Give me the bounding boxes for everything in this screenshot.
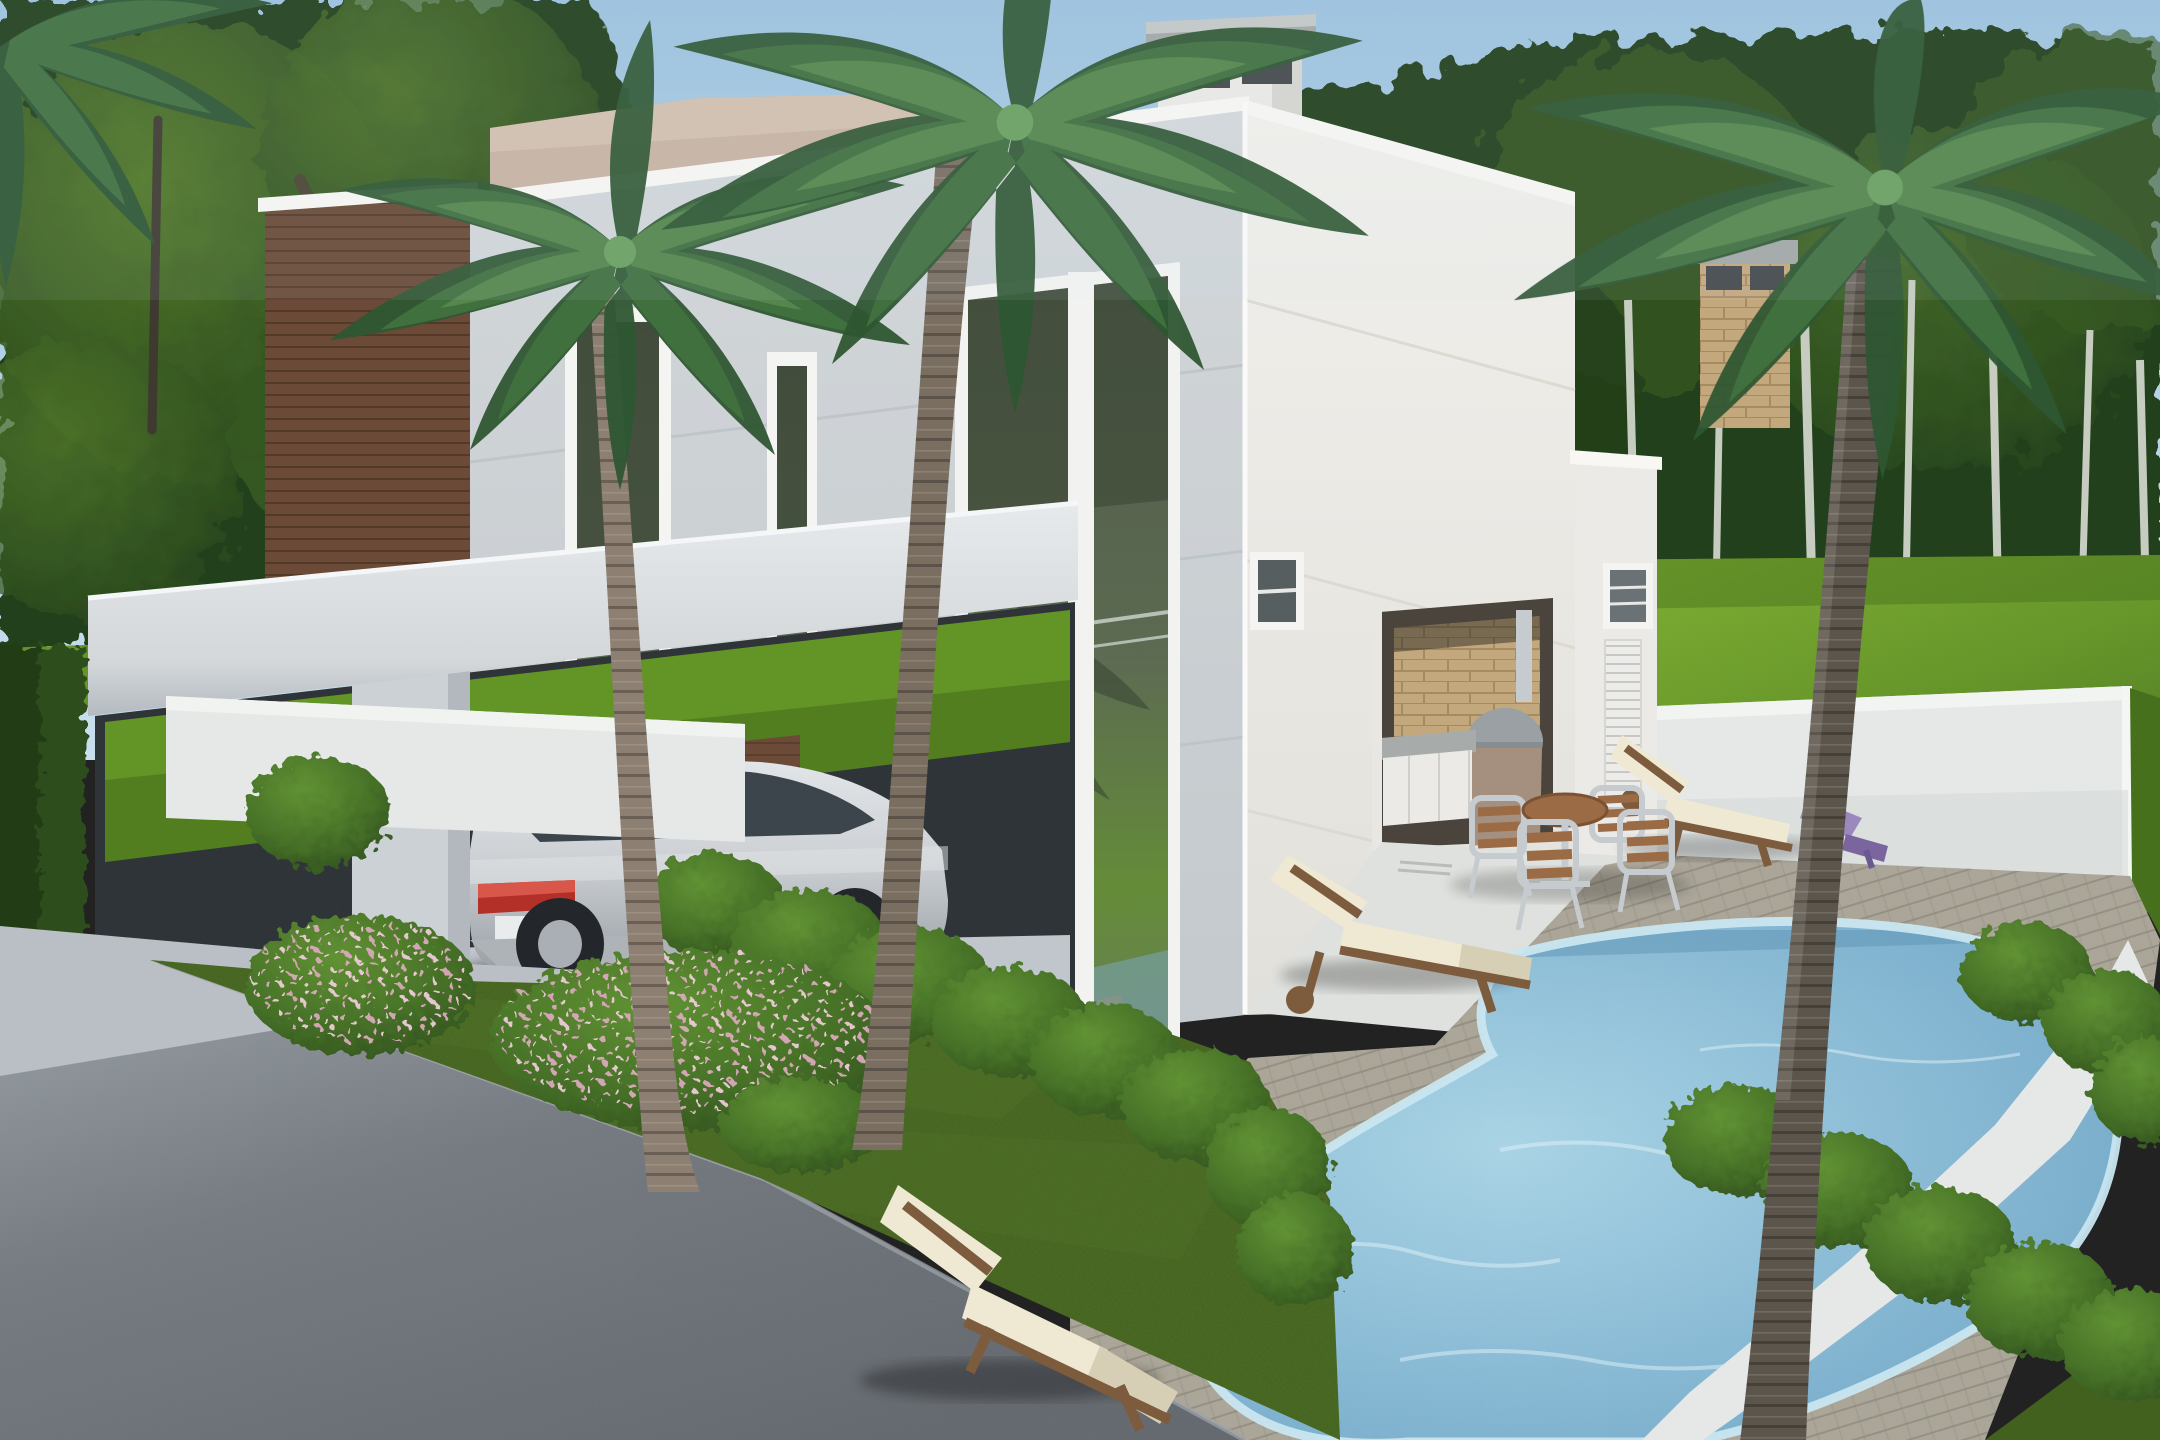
round-bush-wall: [246, 756, 390, 868]
small-side-window: [1250, 552, 1304, 630]
round-bush-grass: [720, 1077, 880, 1173]
scene: [0, 0, 2160, 1440]
pink-bush-small: [245, 915, 475, 1055]
shelf-window: [1603, 563, 1653, 629]
atmosphere-haze: [0, 0, 2160, 300]
left-hedge: [0, 645, 85, 965]
rendering-canvas: 3D exterior rendering: modern white two-…: [0, 0, 2160, 1440]
oven-flue: [1516, 610, 1532, 702]
louvered-door: [1605, 640, 1641, 810]
